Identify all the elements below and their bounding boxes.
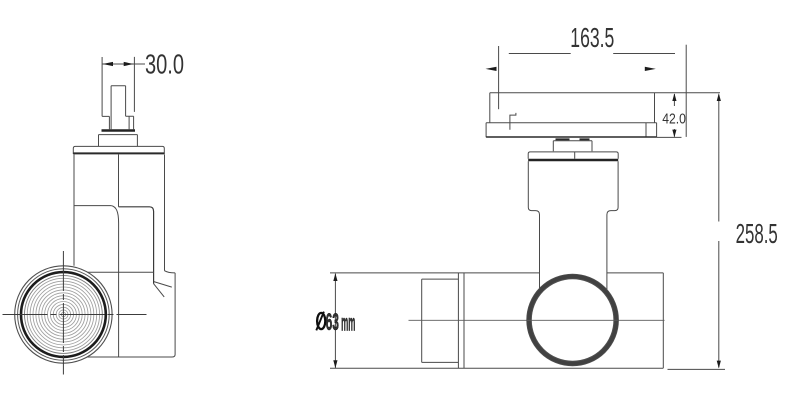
svg-text:63: 63 xyxy=(326,309,339,336)
svg-text:mm: mm xyxy=(341,310,355,336)
svg-text:42.0: 42.0 xyxy=(662,111,686,128)
svg-text:163.5: 163.5 xyxy=(570,22,614,53)
svg-text:258.5: 258.5 xyxy=(736,218,778,249)
svg-text:30.0: 30.0 xyxy=(145,48,184,79)
